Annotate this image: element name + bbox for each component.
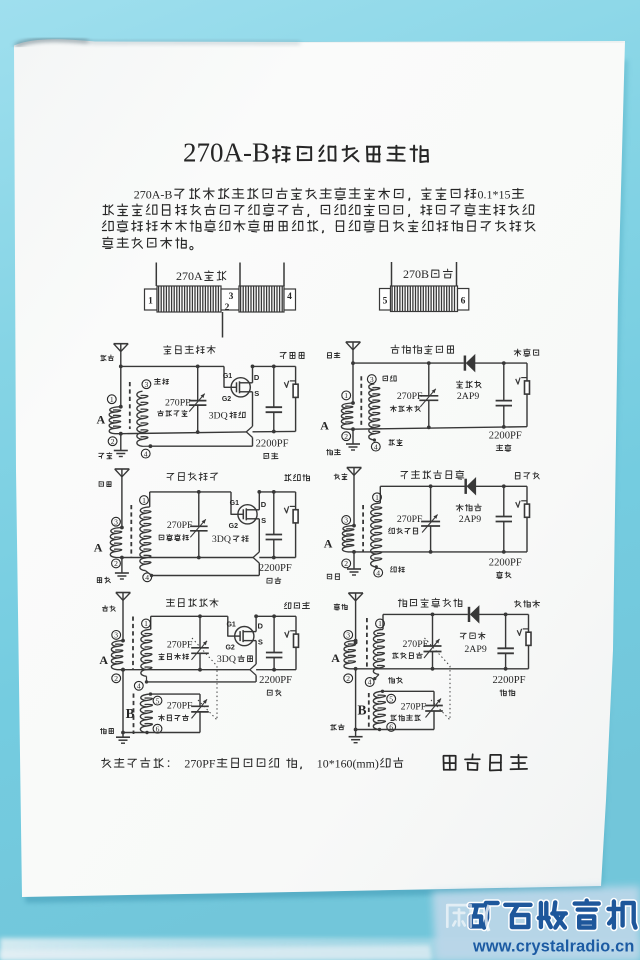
svg-text:10*160(mm): 10*160(mm) <box>317 756 379 770</box>
svg-text:3DQ: 3DQ <box>209 410 228 421</box>
svg-text:3: 3 <box>370 375 374 384</box>
svg-text:4: 4 <box>137 682 141 691</box>
svg-text:3: 3 <box>344 516 348 525</box>
svg-text:270B: 270B <box>403 267 429 281</box>
svg-text:A: A <box>97 413 106 427</box>
svg-text:270PF: 270PF <box>184 756 215 770</box>
svg-text:S: S <box>261 516 266 525</box>
svg-text:3: 3 <box>346 631 350 640</box>
svg-text:2AP9: 2AP9 <box>459 514 481 525</box>
svg-text:4: 4 <box>374 442 378 451</box>
svg-text:270A-B: 270A-B <box>134 188 173 202</box>
svg-text:270PF: 270PF <box>401 701 427 712</box>
svg-text:4: 4 <box>287 292 292 302</box>
svg-text:0.1*15: 0.1*15 <box>478 188 511 202</box>
svg-text:A: A <box>331 651 340 665</box>
svg-text:2: 2 <box>344 559 348 568</box>
svg-text:www.crystalradio.cn: www.crystalradio.cn <box>472 938 635 956</box>
svg-text:270A-B: 270A-B <box>183 138 270 168</box>
svg-text:2: 2 <box>114 559 118 568</box>
svg-text:G2: G2 <box>222 396 231 403</box>
svg-text:270PF: 270PF <box>403 639 429 650</box>
svg-text:2: 2 <box>346 674 350 683</box>
svg-text:270PF: 270PF <box>167 640 193 651</box>
svg-text:G1: G1 <box>226 622 235 629</box>
svg-text:D: D <box>254 373 260 382</box>
svg-text:A: A <box>324 537 333 551</box>
svg-text:D: D <box>258 622 264 631</box>
svg-text:1: 1 <box>378 619 382 628</box>
svg-text:A: A <box>320 419 329 433</box>
svg-text:G1: G1 <box>223 373 232 380</box>
svg-text:2AP9: 2AP9 <box>457 391 479 402</box>
svg-text:3: 3 <box>145 380 149 389</box>
svg-text:3: 3 <box>229 292 234 302</box>
svg-text:2AP9: 2AP9 <box>464 644 486 655</box>
svg-text:2: 2 <box>344 432 348 441</box>
svg-text:G2: G2 <box>229 523 238 530</box>
svg-text:3DQ: 3DQ <box>217 654 236 665</box>
svg-text:A: A <box>94 541 103 555</box>
svg-text:4: 4 <box>145 573 149 582</box>
svg-text:2200PF: 2200PF <box>489 430 522 441</box>
svg-text:270PF: 270PF <box>397 391 423 402</box>
svg-text:S: S <box>254 389 259 398</box>
svg-text:1: 1 <box>375 493 379 502</box>
svg-text:5: 5 <box>156 696 160 705</box>
svg-text:270PF: 270PF <box>397 514 423 525</box>
svg-text:6: 6 <box>461 297 466 307</box>
svg-text:4: 4 <box>144 449 148 458</box>
svg-text:G1: G1 <box>230 500 239 507</box>
svg-text:A: A <box>99 653 108 667</box>
svg-text:1: 1 <box>148 297 153 307</box>
svg-text:5: 5 <box>383 297 388 307</box>
svg-text:1: 1 <box>344 391 348 400</box>
svg-text:2: 2 <box>225 303 230 313</box>
svg-text:2200PF: 2200PF <box>259 675 292 686</box>
svg-text:5: 5 <box>389 694 393 703</box>
svg-text:3: 3 <box>114 517 118 526</box>
svg-text:2200PF: 2200PF <box>259 563 292 574</box>
svg-text:270PF: 270PF <box>165 397 191 408</box>
svg-text:B: B <box>358 703 367 718</box>
svg-text:270PF: 270PF <box>167 520 193 531</box>
svg-text:270A: 270A <box>176 269 203 283</box>
svg-text:G2: G2 <box>225 645 234 652</box>
svg-text:270PF: 270PF <box>167 700 193 711</box>
svg-text:4: 4 <box>368 678 372 687</box>
svg-text:S: S <box>258 638 263 647</box>
svg-text:6: 6 <box>389 723 393 732</box>
svg-text:3DQ: 3DQ <box>212 534 231 545</box>
svg-text:D: D <box>261 500 267 509</box>
svg-text:3: 3 <box>114 631 118 640</box>
svg-text:4: 4 <box>376 568 380 577</box>
svg-text:2: 2 <box>111 437 115 446</box>
svg-text:1: 1 <box>142 496 146 505</box>
svg-text:1: 1 <box>144 619 148 628</box>
svg-text:2200PF: 2200PF <box>493 675 526 686</box>
svg-text:2200PF: 2200PF <box>489 557 522 568</box>
svg-text:2: 2 <box>114 674 118 683</box>
svg-text:2200PF: 2200PF <box>256 438 289 449</box>
svg-text:1: 1 <box>110 395 114 404</box>
